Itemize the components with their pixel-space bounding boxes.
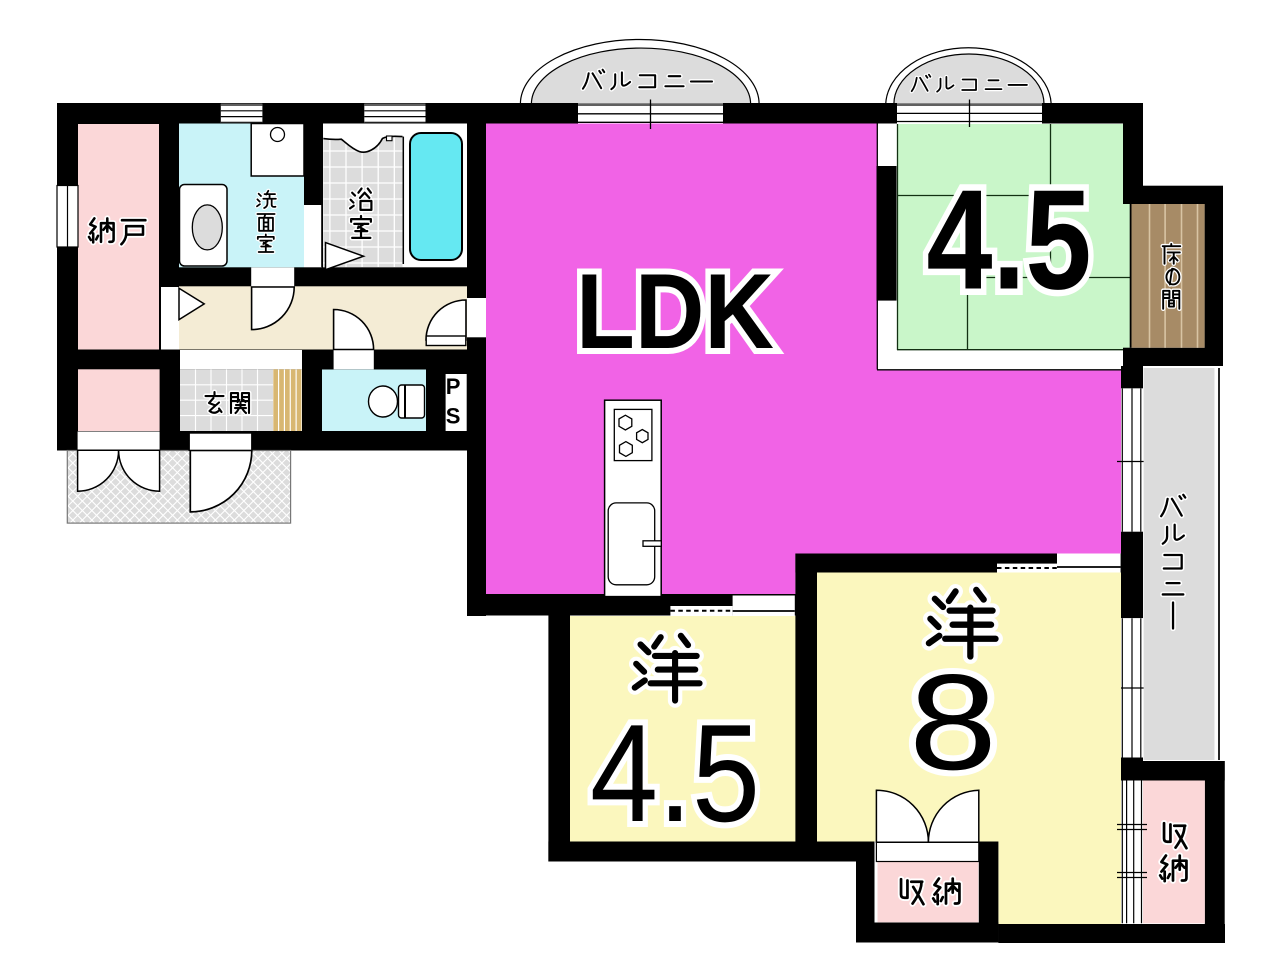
svg-text:S: S <box>446 404 461 429</box>
svg-text:P: P <box>446 374 461 399</box>
svg-text:4.5: 4.5 <box>927 161 1092 320</box>
svg-text:4.5: 4.5 <box>590 696 760 851</box>
svg-text:LDK: LDK <box>576 251 774 371</box>
svg-text:8: 8 <box>909 646 997 798</box>
